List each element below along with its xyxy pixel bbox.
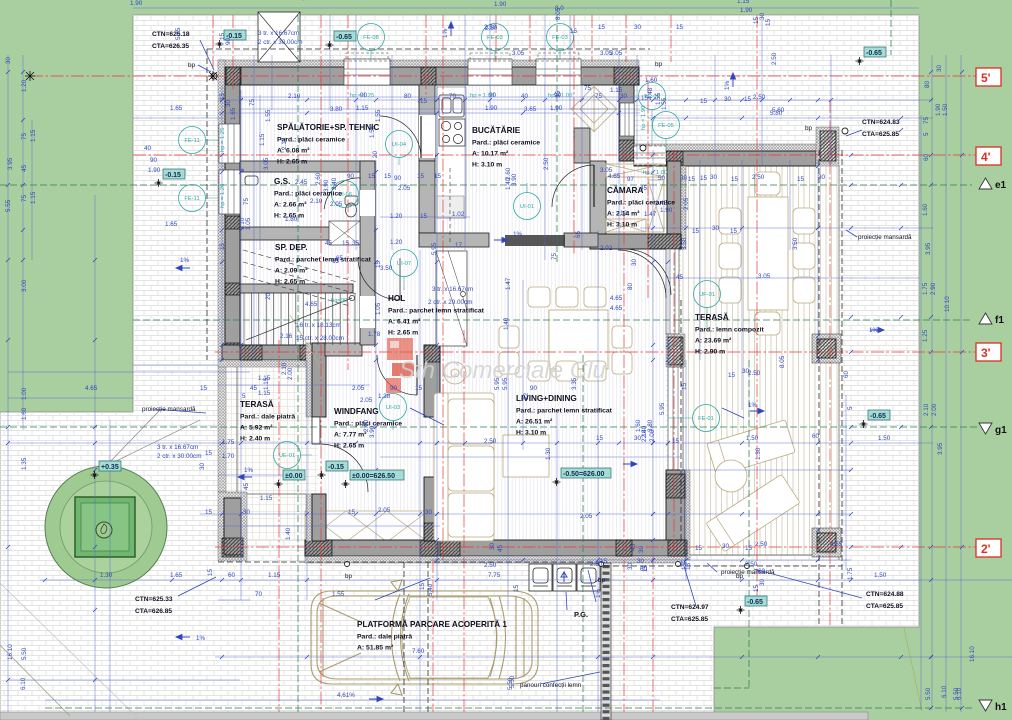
svg-text:5,40: 5,40 [427, 583, 434, 596]
svg-text:1.05: 1.05 [375, 302, 382, 315]
svg-text:±0.00=626.50: ±0.00=626.50 [352, 473, 395, 480]
svg-text:2.10: 2.10 [288, 93, 301, 100]
svg-text:15: 15 [728, 372, 736, 379]
svg-text:3.65: 3.65 [524, 106, 537, 113]
svg-text:1.90: 1.90 [660, 207, 673, 214]
svg-text:15: 15 [685, 562, 692, 570]
svg-text:3': 3' [981, 346, 991, 360]
svg-text:5.95: 5.95 [175, 27, 182, 40]
svg-text:5.50: 5.50 [21, 647, 28, 660]
svg-text:75: 75 [21, 194, 28, 202]
svg-text:1.15: 1.15 [610, 87, 623, 94]
svg-text:hp = 1.26: hp = 1.26 [220, 184, 226, 208]
svg-text:CTN=624.97: CTN=624.97 [671, 604, 709, 611]
svg-text:bp: bp [598, 577, 606, 584]
svg-text:FE-11: FE-11 [184, 138, 199, 144]
svg-text:HOL: HOL [388, 294, 405, 303]
svg-text:70: 70 [449, 93, 457, 100]
svg-text:H: 2.65 m: H: 2.65 m [388, 330, 418, 337]
svg-text:2.05: 2.05 [398, 185, 411, 192]
svg-text:bp: bp [736, 573, 744, 580]
svg-text:3.05: 3.05 [758, 273, 771, 280]
svg-text:1.30: 1.30 [755, 447, 762, 460]
svg-text:5.95: 5.95 [494, 377, 501, 390]
svg-text:3.05: 3.05 [600, 50, 613, 57]
svg-text:1.15: 1.15 [356, 105, 369, 112]
svg-text:2.50: 2.50 [484, 562, 497, 569]
svg-text:15: 15 [570, 28, 578, 35]
svg-text:Pard.: dale piatră: Pard.: dale piatră [357, 634, 412, 641]
svg-text:1%: 1% [196, 635, 206, 642]
svg-text:15: 15 [596, 435, 604, 442]
svg-text:30: 30 [199, 462, 206, 470]
svg-text:3.95: 3.95 [7, 157, 14, 170]
svg-text:30: 30 [243, 509, 251, 516]
svg-text:15: 15 [434, 173, 442, 180]
svg-text:Pard.: parchet lemn stratifica: Pard.: parchet lemn stratificat [516, 408, 613, 415]
svg-text:5.50: 5.50 [509, 675, 516, 688]
svg-text:45: 45 [630, 543, 637, 551]
svg-text:15: 15 [375, 260, 382, 268]
svg-text:15: 15 [676, 24, 684, 31]
svg-text:2.10: 2.10 [281, 137, 288, 150]
svg-text:1.50: 1.50 [878, 435, 891, 442]
svg-text:FE-01: FE-01 [698, 416, 714, 422]
svg-text:1.50: 1.50 [942, 103, 949, 116]
svg-text:2.50: 2.50 [484, 24, 497, 31]
svg-text:UE-01: UE-01 [279, 453, 295, 459]
svg-text:40: 40 [144, 145, 152, 152]
svg-text:2.05: 2.05 [360, 397, 373, 404]
svg-text:15 ctr. x 28.00cm: 15 ctr. x 28.00cm [296, 335, 344, 342]
svg-text:1.65: 1.65 [170, 572, 183, 579]
svg-text:1.55: 1.55 [332, 591, 345, 598]
svg-text:15: 15 [695, 545, 703, 552]
svg-text:TERASĂ: TERASĂ [240, 399, 274, 409]
svg-text:-0.15: -0.15 [165, 172, 181, 179]
svg-text:90: 90 [489, 92, 497, 99]
svg-text:H: 2.65 m: H: 2.65 m [277, 159, 307, 166]
svg-text:5.95: 5.95 [502, 377, 509, 390]
svg-text:2.05: 2.05 [352, 385, 365, 392]
svg-text:2.50: 2.50 [484, 438, 497, 445]
svg-text:1%: 1% [442, 28, 449, 38]
svg-text:2.50: 2.50 [771, 52, 778, 65]
svg-text:60: 60 [812, 433, 820, 440]
svg-text:1.47: 1.47 [644, 211, 657, 218]
svg-text:5.55: 5.55 [5, 199, 12, 212]
svg-text:1.30: 1.30 [100, 572, 113, 579]
svg-text:3.05: 3.05 [512, 50, 525, 57]
svg-text:H: 2.90 m: H: 2.90 m [695, 349, 725, 356]
svg-text:UF-01: UF-01 [699, 292, 715, 298]
svg-text:1.20: 1.20 [390, 213, 403, 220]
svg-text:1.15: 1.15 [260, 495, 273, 502]
svg-text:45: 45 [250, 385, 258, 392]
svg-text:1.15: 1.15 [263, 377, 270, 390]
svg-text:4.65: 4.65 [85, 385, 98, 392]
svg-text:1.30: 1.30 [545, 447, 552, 460]
svg-text:4.65: 4.65 [305, 301, 318, 308]
svg-text:15: 15 [417, 173, 425, 180]
svg-text:30: 30 [712, 225, 720, 232]
svg-text:8.05: 8.05 [779, 355, 786, 368]
svg-text:80: 80 [924, 80, 931, 88]
svg-text:3 tr. x 16.67cm: 3 tr. x 16.67cm [157, 444, 198, 451]
svg-text:1.15: 1.15 [258, 390, 271, 397]
svg-text:1.75: 1.75 [847, 567, 854, 580]
svg-text:SPĂLĂTORIE+SP. TEHNIC: SPĂLĂTORIE+SP. TEHNIC [277, 122, 379, 132]
svg-text:1%: 1% [513, 231, 523, 238]
svg-text:-0.65: -0.65 [870, 413, 886, 420]
svg-text:16.10: 16.10 [7, 644, 14, 660]
svg-text:1.00: 1.00 [21, 387, 28, 400]
svg-text:1%: 1% [180, 257, 190, 264]
svg-text:2.02: 2.02 [600, 245, 613, 252]
svg-text:bp: bp [345, 573, 353, 580]
svg-text:1.75: 1.75 [922, 282, 929, 295]
svg-text:5.80: 5.80 [770, 110, 783, 117]
svg-text:17: 17 [455, 242, 463, 249]
svg-text:5.95: 5.95 [431, 242, 438, 255]
svg-text:UI-07: UI-07 [397, 261, 411, 267]
svg-text:15: 15 [797, 176, 805, 183]
svg-text:1.55: 1.55 [375, 109, 382, 122]
svg-text:1.90: 1.90 [485, 105, 498, 112]
svg-text:15: 15 [688, 176, 696, 183]
svg-text:bp: bp [655, 61, 663, 68]
svg-text:2.40: 2.40 [331, 177, 338, 190]
svg-text:15: 15 [598, 24, 606, 31]
svg-text:UI-03: UI-03 [386, 405, 400, 411]
svg-text:1.05: 1.05 [245, 217, 252, 230]
svg-text:5.50: 5.50 [953, 687, 960, 700]
svg-text:2 ctr. x 30.00cm: 2 ctr. x 30.00cm [157, 453, 201, 460]
svg-text:1.15: 1.15 [30, 191, 37, 204]
svg-text:15: 15 [219, 242, 226, 250]
svg-text:1.60: 1.60 [21, 407, 28, 420]
svg-text:e1: e1 [995, 180, 1007, 191]
svg-text:A: 2.09 m²: A: 2.09 m² [275, 268, 308, 275]
svg-text:H: 2.65 m: H: 2.65 m [275, 279, 305, 286]
svg-text:1.55: 1.55 [265, 109, 272, 122]
svg-text:50: 50 [658, 175, 666, 182]
svg-text:Pard.: plăci ceramice: Pard.: plăci ceramice [274, 191, 342, 198]
svg-text:15: 15 [700, 98, 708, 105]
svg-text:1.47: 1.47 [505, 277, 512, 290]
svg-text:15: 15 [730, 228, 738, 235]
svg-text:1.90: 1.90 [935, 103, 942, 116]
svg-text:2.50: 2.50 [752, 174, 765, 181]
svg-text:15: 15 [700, 175, 708, 182]
svg-text:1.80: 1.80 [285, 216, 298, 223]
svg-text:H: 3.10 m: H: 3.10 m [516, 430, 546, 437]
svg-text:2.50: 2.50 [753, 94, 766, 101]
svg-text:h1: h1 [995, 702, 1007, 713]
svg-text:90: 90 [360, 92, 368, 99]
svg-text:5: 5 [239, 168, 246, 172]
svg-text:A: 23.69 m²: A: 23.69 m² [695, 338, 732, 345]
svg-text:3.35: 3.35 [571, 377, 578, 390]
svg-text:FE-05: FE-05 [658, 123, 674, 129]
svg-text:5': 5' [981, 71, 991, 85]
svg-text:15: 15 [348, 509, 356, 516]
svg-text:75: 75 [551, 252, 558, 260]
svg-text:A: 5.92 m²: A: 5.92 m² [240, 425, 273, 432]
svg-text:1.90: 1.90 [494, 1, 507, 8]
svg-text:90: 90 [347, 173, 355, 180]
svg-text:5.50: 5.50 [925, 687, 932, 700]
svg-text:CTN=624.88: CTN=624.88 [866, 591, 904, 598]
svg-text:3.95: 3.95 [937, 442, 944, 455]
svg-text:1.50: 1.50 [874, 572, 887, 579]
svg-text:1.70: 1.70 [222, 453, 235, 460]
svg-text:15: 15 [368, 173, 376, 180]
svg-text:30: 30 [710, 174, 718, 181]
svg-text:1.40: 1.40 [505, 177, 512, 190]
svg-text:BUCĂTĂRIE: BUCĂTĂRIE [472, 125, 521, 135]
svg-text:4.48: 4.48 [647, 87, 654, 100]
svg-text:15: 15 [384, 173, 392, 180]
svg-text:Pard.: plăci ceramice: Pard.: plăci ceramice [472, 140, 540, 147]
svg-text:CTA=625.85: CTA=625.85 [862, 131, 899, 138]
svg-text:A: 2.66 m²: A: 2.66 m² [274, 202, 307, 209]
svg-text:2.10: 2.10 [923, 403, 930, 416]
svg-text:Pard.: parchet lemn stratifica: Pard.: parchet lemn stratificat [275, 257, 372, 264]
svg-text:CTA=626.85: CTA=626.85 [135, 608, 172, 615]
svg-text:2.16: 2.16 [280, 333, 293, 340]
svg-text:3.95: 3.95 [925, 242, 932, 255]
svg-text:5: 5 [242, 393, 246, 400]
svg-text:1.50: 1.50 [746, 435, 759, 442]
svg-text:2.05: 2.05 [580, 513, 593, 520]
svg-text:4.65: 4.65 [610, 305, 623, 312]
svg-text:FE-03: FE-03 [552, 35, 568, 41]
svg-text:FE-08: FE-08 [363, 35, 379, 41]
svg-text:1.75: 1.75 [222, 439, 235, 446]
svg-text:FE-03: FE-03 [487, 35, 503, 41]
svg-text:1%: 1% [748, 402, 758, 409]
svg-text:Pard.: lemn compozit: Pard.: lemn compozit [695, 327, 764, 334]
svg-text:Pard.: dale piatră: Pard.: dale piatră [240, 414, 295, 421]
svg-text:FE-11: FE-11 [184, 196, 199, 202]
svg-text:1.90: 1.90 [130, 0, 143, 7]
svg-text:hp=90: hp=90 [300, 0, 316, 2]
svg-text:5: 5 [923, 132, 930, 136]
svg-text:30: 30 [638, 545, 645, 553]
svg-text:1.60: 1.60 [645, 77, 658, 84]
svg-text:g1: g1 [995, 425, 1007, 436]
svg-text:15: 15 [419, 582, 426, 590]
svg-text:4.65: 4.65 [610, 295, 623, 302]
svg-text:45: 45 [243, 482, 250, 490]
svg-text:TERASĂ: TERASĂ [695, 312, 729, 322]
svg-text:75: 75 [21, 132, 28, 140]
svg-text:7.75: 7.75 [488, 572, 501, 579]
svg-text:A: 51.85 m²: A: 51.85 m² [357, 645, 394, 652]
svg-text:2.05: 2.05 [378, 507, 391, 514]
svg-text:30: 30 [680, 175, 688, 182]
svg-text:15: 15 [642, 564, 649, 572]
svg-text:45: 45 [497, 544, 504, 552]
svg-text:3.80: 3.80 [330, 106, 343, 113]
svg-text:15: 15 [765, 18, 772, 26]
svg-text:CTN=624.83: CTN=624.83 [862, 119, 900, 126]
svg-text:2.10: 2.10 [310, 198, 323, 205]
svg-text:15: 15 [672, 438, 680, 445]
svg-text:15: 15 [342, 240, 350, 247]
svg-text:30: 30 [818, 174, 826, 181]
svg-text:2': 2' [981, 542, 991, 556]
svg-text:bp: bp [805, 125, 813, 132]
svg-text:30: 30 [425, 509, 433, 516]
svg-text:UI-04: UI-04 [392, 142, 407, 148]
svg-text:-0.65: -0.65 [866, 50, 882, 57]
svg-text:1.90: 1.90 [148, 167, 161, 174]
svg-text:30: 30 [936, 64, 943, 72]
svg-text:2.00: 2.00 [931, 403, 938, 416]
svg-text:3.90: 3.90 [511, 173, 518, 186]
svg-text:H: 3.10 m: H: 3.10 m [472, 162, 502, 169]
svg-text:60: 60 [228, 572, 236, 579]
svg-text:1.45: 1.45 [655, 200, 668, 207]
svg-text:60: 60 [843, 370, 850, 378]
svg-text:1%: 1% [244, 467, 254, 474]
svg-text:4.65: 4.65 [830, 541, 843, 548]
svg-text:1.20: 1.20 [21, 79, 28, 92]
svg-text:75: 75 [249, 98, 256, 106]
svg-text:CTN=625.33: CTN=625.33 [135, 596, 173, 603]
svg-text:-0.65: -0.65 [747, 599, 763, 606]
svg-text:3.05: 3.05 [263, 157, 270, 170]
svg-text:2 ctr. x 30.00cm: 2 ctr. x 30.00cm [258, 39, 302, 46]
svg-text:60: 60 [923, 153, 930, 161]
svg-text:70: 70 [255, 591, 263, 598]
svg-text:20: 20 [265, 292, 272, 300]
svg-text:3.50: 3.50 [681, 237, 688, 250]
svg-text:22: 22 [523, 392, 530, 400]
svg-text:30: 30 [489, 542, 496, 550]
svg-text:1.90: 1.90 [550, 105, 563, 112]
svg-text:35: 35 [555, 90, 562, 98]
svg-text:2.00: 2.00 [287, 367, 294, 380]
svg-text:30: 30 [722, 543, 730, 550]
svg-text:15: 15 [207, 568, 214, 576]
svg-text:1%: 1% [724, 80, 731, 90]
svg-text:SP. DEP.: SP. DEP. [275, 243, 307, 252]
svg-text:1.40: 1.40 [503, 317, 510, 330]
svg-text:65: 65 [332, 258, 340, 265]
svg-text:CTN=625.18: CTN=625.18 [152, 31, 190, 38]
svg-text:30: 30 [634, 24, 642, 31]
svg-text:1.65: 1.65 [170, 105, 183, 112]
svg-text:75: 75 [584, 85, 592, 92]
svg-text:1.02: 1.02 [452, 211, 465, 218]
svg-text:2 ctr. x 29.00cm: 2 ctr. x 29.00cm [428, 299, 472, 306]
svg-text:1.40: 1.40 [285, 527, 292, 540]
svg-text:30: 30 [724, 96, 732, 103]
svg-text:5.95: 5.95 [659, 402, 666, 415]
svg-text:1.15: 1.15 [259, 133, 266, 146]
svg-text:3 tr. x 16.67cm: 3 tr. x 16.67cm [258, 30, 299, 37]
svg-text:hq=90: hq=90 [331, 298, 347, 304]
svg-text:90: 90 [150, 157, 158, 164]
svg-text:6.10: 6.10 [20, 677, 27, 690]
svg-text:2.50: 2.50 [745, 561, 758, 568]
svg-text:1.65: 1.65 [230, 107, 237, 120]
svg-text:10.10: 10.10 [944, 296, 951, 312]
svg-text:5: 5 [847, 406, 854, 410]
svg-text:A: 6.41 m²: A: 6.41 m² [388, 319, 421, 326]
svg-text:2.50: 2.50 [755, 541, 768, 548]
svg-text:3.90: 3.90 [323, 179, 330, 192]
svg-text:30: 30 [742, 368, 750, 375]
svg-text:30: 30 [620, 93, 628, 100]
svg-text:H: 2.40 m: H: 2.40 m [240, 436, 270, 443]
svg-text:15: 15 [600, 558, 608, 565]
svg-text:4,61%: 4,61% [337, 692, 355, 699]
svg-text:90: 90 [390, 385, 398, 392]
svg-text:1.38: 1.38 [378, 393, 391, 400]
svg-text:30: 30 [627, 562, 634, 570]
svg-text:15: 15 [692, 228, 700, 235]
svg-text:1.35: 1.35 [21, 457, 28, 470]
svg-text:30: 30 [637, 558, 645, 565]
svg-text:-0.65: -0.65 [336, 34, 352, 41]
svg-text:1.25: 1.25 [922, 329, 929, 342]
svg-text:35: 35 [352, 240, 360, 247]
svg-text:A: 10.17 m²: A: 10.17 m² [472, 151, 509, 158]
svg-text:2.50: 2.50 [543, 157, 550, 170]
svg-text:G.S.: G.S. [274, 177, 290, 186]
svg-text:45: 45 [676, 274, 684, 281]
svg-text:PLATFORMĂ PARCARE ACOPERITĂ 1: PLATFORMĂ PARCARE ACOPERITĂ 1 [357, 619, 507, 629]
svg-text:hp = 1.90: hp = 1.90 [641, 106, 647, 130]
svg-text:3 tr. x 16.67cm: 3 tr. x 16.67cm [432, 286, 473, 293]
svg-text:1.60: 1.60 [922, 203, 929, 216]
svg-text:-0.50=626.00: -0.50=626.00 [563, 471, 605, 478]
svg-text:1.78: 1.78 [368, 331, 381, 338]
svg-text:90: 90 [394, 175, 402, 182]
svg-text:2.60: 2.60 [315, 172, 322, 185]
svg-text:65: 65 [575, 230, 582, 238]
svg-text:1.55: 1.55 [369, 125, 376, 138]
svg-text:20: 20 [372, 150, 379, 158]
svg-text:CTA=625.85: CTA=625.85 [866, 603, 903, 610]
svg-text:45: 45 [325, 240, 333, 247]
svg-text:30: 30 [759, 578, 766, 586]
svg-text:2.45: 2.45 [295, 179, 308, 186]
svg-text:CTA=626.35: CTA=626.35 [152, 43, 189, 50]
svg-text:15: 15 [415, 385, 423, 392]
svg-text:97: 97 [627, 176, 635, 183]
svg-text:75: 75 [243, 197, 250, 205]
svg-text:2.05: 2.05 [683, 197, 690, 210]
svg-text:1%: 1% [595, 588, 602, 598]
svg-text:4': 4' [981, 150, 991, 164]
svg-text:15: 15 [219, 92, 226, 100]
svg-text:UI-01: UI-01 [520, 204, 534, 210]
svg-text:1.15: 1.15 [268, 572, 281, 579]
svg-text:40: 40 [521, 93, 529, 100]
svg-text:2.00: 2.00 [649, 429, 656, 442]
svg-text:60: 60 [758, 568, 766, 575]
svg-text:H: 3.10 m: H: 3.10 m [607, 222, 637, 229]
svg-text:80: 80 [404, 93, 412, 100]
svg-text:75: 75 [595, 93, 603, 100]
svg-text:16.10: 16.10 [969, 646, 976, 662]
svg-text:1.65: 1.65 [165, 221, 178, 228]
